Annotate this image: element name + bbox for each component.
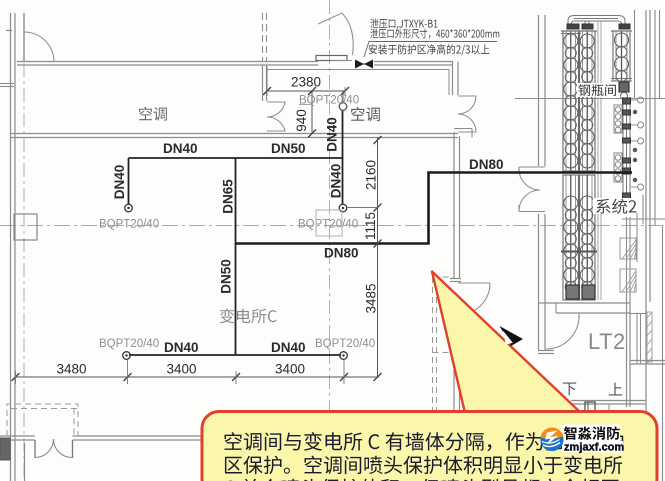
svg-text:DN40: DN40	[271, 340, 306, 355]
svg-text:BQPT20/40: BQPT20/40	[99, 338, 159, 350]
svg-text:DN65: DN65	[221, 179, 236, 214]
svg-text:BQPT20/40: BQPT20/40	[315, 338, 375, 350]
svg-text:BQPT20/40: BQPT20/40	[299, 95, 359, 107]
svg-text:DN50: DN50	[271, 141, 306, 156]
svg-text:3480: 3480	[56, 362, 86, 377]
svg-text:DN80: DN80	[469, 157, 504, 172]
svg-text:LT2: LT2	[588, 329, 626, 354]
svg-text:DN40: DN40	[325, 117, 340, 152]
svg-text:DN40: DN40	[164, 340, 199, 355]
svg-text:1115: 1115	[363, 212, 378, 240]
svg-text:DN40: DN40	[329, 164, 344, 199]
svg-text:2380: 2380	[291, 75, 321, 90]
svg-text:DN40: DN40	[112, 165, 127, 200]
svg-text:zmjaxf.com: zmjaxf.com	[564, 442, 625, 454]
svg-text:DN80: DN80	[324, 246, 359, 261]
svg-text:3400: 3400	[275, 362, 305, 377]
svg-text:2160: 2160	[364, 160, 379, 190]
svg-text:3485: 3485	[364, 283, 379, 313]
svg-text:BQPT20/40: BQPT20/40	[99, 219, 159, 231]
svg-text:DN50: DN50	[219, 259, 234, 294]
svg-text:940: 940	[294, 109, 309, 132]
svg-text:3400: 3400	[166, 362, 196, 377]
svg-text:DN40: DN40	[163, 141, 198, 156]
svg-text:BQPT20/40: BQPT20/40	[298, 219, 358, 231]
